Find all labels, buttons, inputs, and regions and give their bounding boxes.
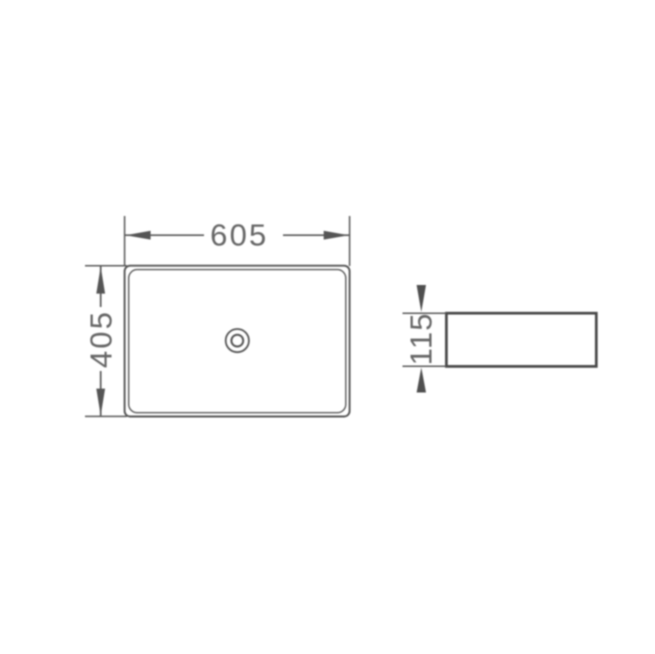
svg-text:115: 115	[403, 312, 438, 365]
svg-text:605: 605	[210, 218, 268, 253]
svg-text:405: 405	[84, 310, 119, 368]
